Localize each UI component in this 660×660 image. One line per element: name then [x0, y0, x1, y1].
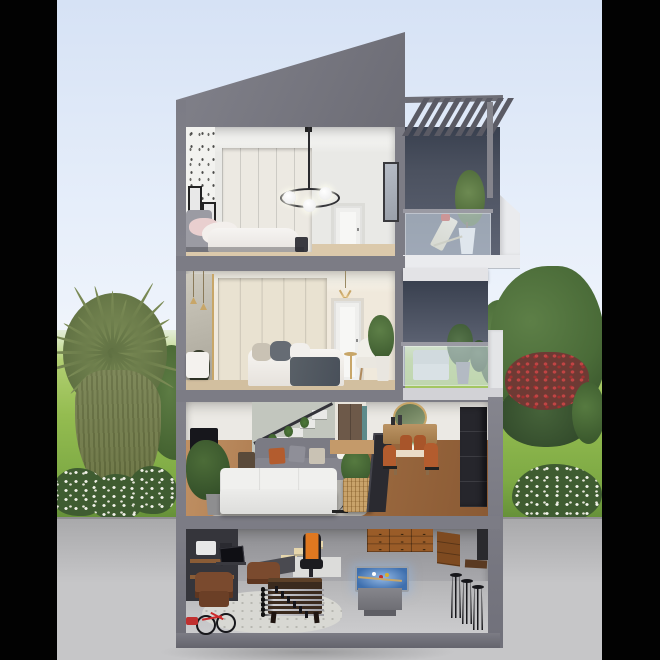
wood-cabinet-right: [437, 531, 460, 566]
rod-4: [261, 609, 324, 611]
dark-niche: [477, 529, 488, 560]
scene-viewport: [57, 0, 602, 660]
balcony-ceiling: [403, 268, 488, 281]
door-handle: [357, 228, 359, 231]
pendant-globe: [283, 191, 296, 204]
foosball-leg: [313, 612, 319, 623]
pendant-globe: [319, 187, 332, 200]
pool-table-base: [364, 610, 396, 616]
wood-cabinets: [367, 529, 433, 552]
terrace-slab: [403, 255, 520, 268]
stair-plant: [284, 426, 293, 437]
white-pillar: [488, 330, 503, 397]
rod-1: [261, 594, 324, 596]
front-door: [338, 404, 362, 442]
pool-ball: [385, 573, 389, 577]
foosball-table: [268, 578, 322, 614]
door-sidelight: [362, 406, 367, 440]
red-toy: [186, 617, 198, 625]
white-sofa-seat: [220, 490, 337, 514]
flower-bush-right: [512, 464, 602, 522]
dining-chair-right: [424, 443, 438, 469]
picture-frame: [188, 186, 202, 212]
cream-pillow: [309, 448, 325, 464]
left-wall: [176, 100, 186, 648]
printer: [196, 541, 216, 555]
gaming-chair-post: [309, 569, 313, 577]
pendant-stem: [308, 127, 310, 189]
pool-table-body: [358, 588, 402, 610]
balcony-wall: [403, 281, 488, 346]
gray-pillow: [288, 445, 305, 462]
master-bedroom: [186, 271, 395, 386]
flower-bush: [127, 466, 177, 514]
pergola-post: [487, 102, 493, 198]
bed-pillow: [252, 343, 272, 361]
bedside-bench: [186, 352, 209, 378]
door-handle: [356, 339, 358, 342]
slab-3: [176, 516, 500, 529]
basement: [186, 529, 488, 633]
chair-legs: [425, 467, 439, 470]
pendant-cord: [193, 271, 194, 297]
leather-armchair-seat: [199, 591, 229, 607]
attic-bedroom: [186, 127, 395, 252]
bed-pillow: [270, 341, 292, 361]
pendant-cord: [203, 271, 204, 303]
living-floor: [186, 402, 488, 516]
stair-plant: [300, 417, 309, 428]
decor-bottle: [391, 417, 395, 425]
slab-1: [176, 256, 405, 271]
plant-pot: [375, 356, 391, 381]
bottom-slab: [176, 633, 500, 648]
bar-stools: [450, 573, 490, 631]
chandelier-stem: [345, 271, 346, 288]
chair-legs: [383, 466, 397, 469]
rod-3: [261, 604, 324, 606]
far-right-bush: [572, 382, 602, 444]
decor-bottle: [398, 415, 402, 425]
side-table-stem: [350, 355, 352, 379]
tall-cabinet: [460, 407, 487, 507]
pool-ball: [372, 572, 376, 576]
architectural-cutaway-render: [0, 0, 660, 660]
desk: [216, 562, 246, 565]
balcony-glass-railing: [403, 346, 492, 386]
bar-ledge: [465, 559, 487, 568]
potted-plant-foliage: [368, 315, 394, 359]
stool-2: [472, 585, 484, 633]
rod-0: [261, 589, 324, 591]
pendant-globe: [303, 199, 316, 212]
wall-mirror: [383, 162, 399, 222]
bed-shadow: [186, 247, 304, 252]
rust-pillow: [268, 447, 285, 464]
throw-blanket: [290, 357, 340, 386]
gaming-chair-seat: [300, 559, 323, 569]
terrace-glass-railing: [405, 213, 491, 256]
hall-floor: [330, 440, 374, 454]
attic-wood-floor: [312, 244, 395, 252]
